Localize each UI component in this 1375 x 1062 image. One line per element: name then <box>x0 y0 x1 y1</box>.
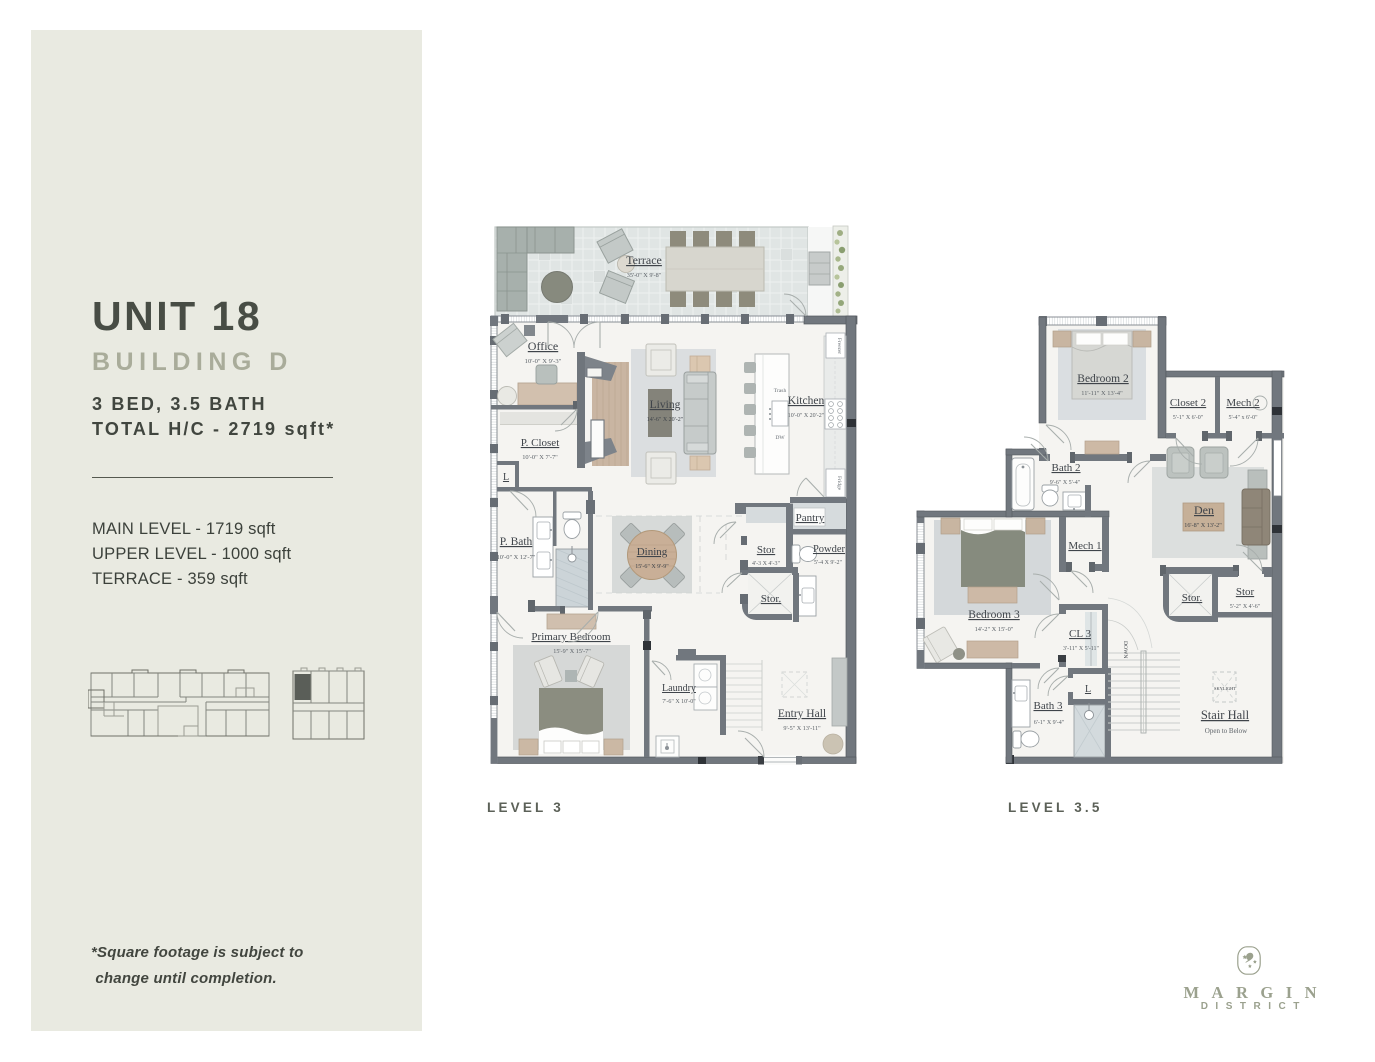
svg-text:14'-6" X 20'-2": 14'-6" X 20'-2" <box>647 417 684 423</box>
svg-text:10'-0" X 20'-2": 10'-0" X 20'-2" <box>788 413 825 419</box>
svg-text:10'-0" X 9'-3": 10'-0" X 9'-3" <box>525 358 562 365</box>
svg-text:Stor.: Stor. <box>1182 592 1203 604</box>
svg-text:Stor: Stor <box>757 544 776 556</box>
svg-text:Stor.: Stor. <box>761 593 782 605</box>
svg-text:Powder: Powder <box>813 544 846 555</box>
svg-text:Freezer: Freezer <box>836 338 842 354</box>
svg-text:CL 3: CL 3 <box>1069 628 1091 640</box>
svg-text:P. Closet: P. Closet <box>521 437 560 449</box>
svg-text:9'-5" X 13'-11": 9'-5" X 13'-11" <box>783 725 821 732</box>
svg-text:Office: Office <box>528 339 558 353</box>
svg-text:Open to Below: Open to Below <box>1205 727 1248 735</box>
svg-text:14'-2" X 15'-0": 14'-2" X 15'-0" <box>975 626 1014 633</box>
svg-text:Mech 2: Mech 2 <box>1226 397 1259 409</box>
svg-text:5'-4" x 6'-0": 5'-4" x 6'-0" <box>1228 415 1258 421</box>
svg-text:Den: Den <box>1194 503 1214 517</box>
svg-text:P. Bath: P. Bath <box>500 536 533 548</box>
svg-text:Terrace: Terrace <box>626 253 662 267</box>
svg-text:11'-11" X 13'-4": 11'-11" X 13'-4" <box>1081 390 1123 397</box>
svg-text:Dining: Dining <box>637 546 668 558</box>
svg-text:L: L <box>503 472 509 483</box>
svg-text:9'-6" X 5'-4": 9'-6" X 5'-4" <box>1050 480 1081 486</box>
svg-text:Living: Living <box>650 399 681 411</box>
svg-text:Stor: Stor <box>1236 586 1255 598</box>
svg-text:5'-2" X 4'-6": 5'-2" X 4'-6" <box>1230 604 1261 610</box>
svg-text:35'-0" X 9'-8": 35'-0" X 9'-8" <box>627 272 662 279</box>
svg-text:L: L <box>1085 684 1091 695</box>
svg-text:15'-6" X 9'-9": 15'-6" X 9'-9" <box>635 564 669 570</box>
svg-text:Pantry: Pantry <box>796 512 825 524</box>
svg-text:Kitchen: Kitchen <box>788 395 825 407</box>
svg-text:SKYLIGHT: SKYLIGHT <box>1214 686 1236 691</box>
svg-text:16'-8" X 13'-2": 16'-8" X 13'-2" <box>1184 522 1222 529</box>
svg-text:7'-6" X 10'-0": 7'-6" X 10'-0" <box>662 699 696 705</box>
svg-text:DOWN: DOWN <box>1122 641 1128 658</box>
svg-text:Bath 2: Bath 2 <box>1051 462 1080 474</box>
svg-text:Bedroom 2: Bedroom 2 <box>1077 373 1129 385</box>
svg-text:Fridge: Fridge <box>836 476 842 491</box>
svg-text:DW: DW <box>775 435 785 441</box>
svg-text:Stair Hall: Stair Hall <box>1201 708 1250 722</box>
svg-text:4'-3 X 4'-3": 4'-3 X 4'-3" <box>752 561 780 567</box>
svg-text:10'-0" X 12'-7": 10'-0" X 12'-7" <box>497 554 536 561</box>
svg-text:Closet 2: Closet 2 <box>1170 397 1206 409</box>
svg-text:Mech 1: Mech 1 <box>1068 540 1101 552</box>
svg-text:Primary Bedroom: Primary Bedroom <box>531 631 611 643</box>
svg-text:Trash: Trash <box>774 388 787 394</box>
svg-text:6'-1" X 9'-4": 6'-1" X 9'-4" <box>1034 720 1065 726</box>
svg-text:Entry Hall: Entry Hall <box>778 708 826 720</box>
svg-text:15'-9" X 15'-7": 15'-9" X 15'-7" <box>553 648 591 655</box>
svg-text:10'-0" X 7'-7": 10'-0" X 7'-7" <box>522 454 558 461</box>
svg-text:Bath 3: Bath 3 <box>1033 700 1063 712</box>
svg-text:5'-1" X 6'-0": 5'-1" X 6'-0" <box>1173 415 1204 421</box>
svg-text:5'-4 X 9'-2": 5'-4 X 9'-2" <box>814 560 842 566</box>
svg-text:Bedroom 3: Bedroom 3 <box>968 609 1020 621</box>
svg-text:Laundry: Laundry <box>662 683 696 694</box>
svg-text:3'-11" X 5'-11": 3'-11" X 5'-11" <box>1063 646 1099 652</box>
